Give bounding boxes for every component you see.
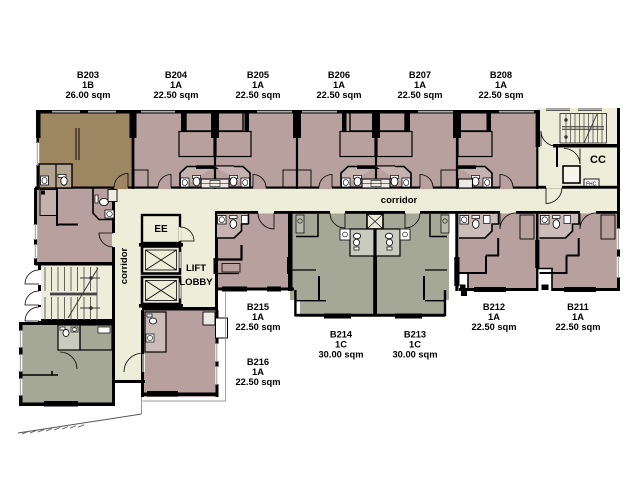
- svg-text:B211: B211: [567, 302, 589, 312]
- svg-text:1A: 1A: [252, 312, 264, 322]
- svg-text:22.50 sqm: 22.50 sqm: [154, 90, 199, 100]
- svg-text:22.50 sqm: 22.50 sqm: [317, 90, 362, 100]
- svg-text:22.50 sqm: 22.50 sqm: [236, 90, 281, 100]
- svg-text:EE: EE: [154, 224, 168, 235]
- svg-text:B205: B205: [247, 70, 269, 80]
- svg-text:22.50 sqm: 22.50 sqm: [479, 90, 524, 100]
- svg-text:1B: 1B: [82, 80, 94, 90]
- svg-text:26.00 sqm: 26.00 sqm: [66, 90, 111, 100]
- svg-text:B208: B208: [490, 70, 512, 80]
- svg-text:B215: B215: [247, 302, 269, 312]
- svg-text:1C: 1C: [335, 340, 347, 350]
- svg-text:1C: 1C: [409, 340, 421, 350]
- svg-text:1A: 1A: [572, 312, 584, 322]
- svg-text:CC: CC: [590, 154, 606, 166]
- svg-text:30.00 sqm: 30.00 sqm: [393, 350, 438, 360]
- svg-text:corridor: corridor: [119, 247, 130, 284]
- svg-text:1A: 1A: [414, 80, 426, 90]
- svg-text:B212: B212: [483, 302, 505, 312]
- svg-text:B203: B203: [77, 70, 99, 80]
- svg-text:B216: B216: [247, 357, 269, 367]
- svg-text:1A: 1A: [488, 312, 500, 322]
- svg-text:22.50 sqm: 22.50 sqm: [236, 377, 281, 387]
- svg-text:22.50 sqm: 22.50 sqm: [556, 322, 601, 332]
- svg-text:B207: B207: [409, 70, 431, 80]
- svg-text:corridor: corridor: [381, 195, 418, 206]
- svg-text:B214: B214: [330, 330, 353, 340]
- svg-text:1A: 1A: [252, 80, 264, 90]
- svg-text:22.50 sqm: 22.50 sqm: [472, 322, 517, 332]
- svg-text:1A: 1A: [333, 80, 345, 90]
- svg-text:22.50 sqm: 22.50 sqm: [236, 322, 281, 332]
- svg-text:22.50 sqm: 22.50 sqm: [398, 90, 443, 100]
- svg-text:1A: 1A: [170, 80, 182, 90]
- svg-text:B204: B204: [165, 70, 188, 80]
- svg-text:B206: B206: [328, 70, 350, 80]
- svg-text:1A: 1A: [252, 367, 264, 377]
- svg-text:1A: 1A: [495, 80, 507, 90]
- svg-text:B213: B213: [404, 330, 426, 340]
- svg-text:LIFT: LIFT: [186, 263, 206, 274]
- svg-text:30.00 sqm: 30.00 sqm: [319, 350, 364, 360]
- svg-text:LOBBY: LOBBY: [179, 277, 213, 288]
